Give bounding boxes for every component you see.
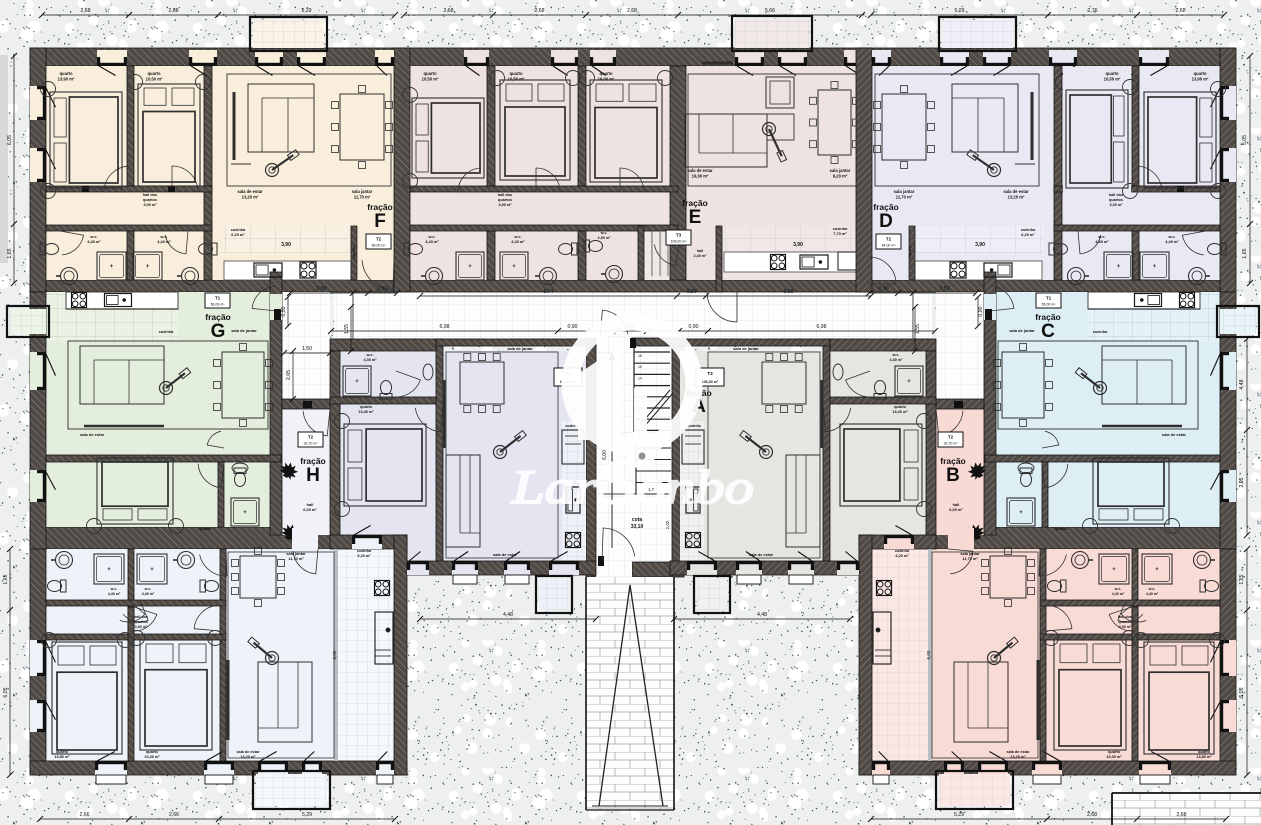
svg-text:+: + — [243, 510, 247, 516]
svg-text:T2: T2 — [308, 435, 314, 440]
svg-text:2,68: 2,68 — [443, 8, 453, 14]
svg-text:+: + — [512, 264, 516, 270]
svg-text:2,40 m²: 2,40 m² — [693, 254, 707, 258]
svg-text:2,95: 2,95 — [1239, 477, 1245, 487]
svg-text:quartos: quartos — [143, 198, 157, 202]
svg-text:2,66: 2,66 — [79, 812, 89, 818]
svg-text:T2: T2 — [948, 435, 954, 440]
svg-text:2,68: 2,68 — [1175, 8, 1185, 14]
svg-text:quartos: quartos — [134, 620, 148, 624]
svg-text:11,70 m²: 11,70 m² — [354, 194, 371, 199]
svg-text:2,68: 2,68 — [534, 8, 544, 14]
svg-text:4,40 m²: 4,40 m² — [511, 239, 525, 244]
svg-text:1,55: 1,55 — [915, 324, 921, 334]
svg-text:4,00 m²: 4,00 m² — [498, 203, 512, 207]
svg-text:5,29: 5,29 — [302, 812, 312, 818]
svg-text:13,40 m²: 13,40 m² — [892, 410, 908, 414]
svg-text:quarto: quarto — [59, 71, 72, 76]
svg-text:hall: hall — [697, 249, 704, 253]
svg-text:6,05: 6,05 — [3, 687, 9, 697]
svg-text:11,70 m²: 11,70 m² — [962, 556, 978, 561]
svg-text:6,00 m²: 6,00 m² — [949, 507, 963, 512]
svg-text:sala de estar: sala de estar — [1162, 432, 1187, 437]
svg-text:quarto: quarto — [1055, 526, 1068, 531]
svg-text:4,40 m²: 4,40 m² — [1146, 592, 1159, 596]
svg-text:1,55: 1,55 — [344, 324, 350, 334]
svg-text:3,00 m²: 3,00 m² — [1109, 203, 1123, 207]
svg-text:+: + — [107, 567, 111, 573]
svg-text:19,30 m²: 19,30 m² — [692, 173, 709, 178]
svg-text:11,70 m²: 11,70 m² — [896, 194, 913, 199]
svg-text:cozinha: cozinha — [895, 549, 910, 553]
svg-text:hall dos: hall dos — [498, 193, 512, 197]
svg-text:cota: cota — [632, 517, 643, 523]
svg-text:quarto: quarto — [360, 405, 372, 409]
svg-text:sala de estar: sala de estar — [1006, 750, 1030, 754]
svg-text:5,29: 5,29 — [301, 8, 311, 14]
svg-text:quarto: quarto — [423, 71, 436, 76]
svg-text:+: + — [468, 264, 472, 270]
svg-text:hall dos: hall dos — [1109, 193, 1123, 197]
svg-text:106,00 m²: 106,00 m² — [702, 380, 719, 384]
svg-text:16,00 m²: 16,00 m² — [598, 76, 615, 81]
svg-text:sala jantar: sala jantar — [830, 168, 851, 173]
svg-text:E: E — [689, 207, 702, 228]
svg-text:sala de estar: sala de estar — [1003, 189, 1029, 194]
svg-text:C: C — [1041, 321, 1055, 342]
svg-text:16: 16 — [638, 354, 642, 358]
svg-text:86,00 m²: 86,00 m² — [372, 244, 387, 248]
svg-text:sala jantar: sala jantar — [352, 189, 373, 194]
svg-text:0,90: 0,90 — [281, 306, 287, 316]
svg-text:3,90: 3,90 — [975, 242, 985, 248]
svg-text:F: F — [374, 211, 386, 232]
svg-text:92,70 m²: 92,70 m² — [944, 442, 959, 446]
svg-text:3,00 m²: 3,00 m² — [143, 203, 157, 207]
svg-text:6,98: 6,98 — [439, 324, 449, 330]
svg-text:13,90 m²: 13,90 m² — [1192, 76, 1209, 81]
svg-text:4,40 m²: 4,40 m² — [1165, 239, 1179, 244]
svg-text:4,40 m²: 4,40 m² — [1112, 592, 1125, 596]
svg-text:sala de estar: sala de estar — [80, 432, 105, 437]
svg-text:7,70 m²: 7,70 m² — [833, 231, 847, 236]
svg-text:quartos: quartos — [1118, 620, 1132, 624]
svg-text:quarto: quarto — [599, 71, 612, 76]
svg-text:1,65: 1,65 — [1239, 574, 1245, 584]
svg-text:10,50 m²: 10,50 m² — [508, 76, 525, 81]
svg-text:0,90: 0,90 — [686, 289, 696, 295]
svg-text:5,29: 5,29 — [954, 8, 964, 14]
svg-text:4,40 m²: 4,40 m² — [87, 239, 101, 244]
svg-text:3,00 m²: 3,00 m² — [1119, 625, 1132, 629]
svg-text:w.c.: w.c. — [600, 231, 608, 235]
svg-text:3,90: 3,90 — [793, 242, 803, 248]
svg-text:2,65: 2,65 — [286, 370, 292, 380]
svg-text:sala de estar: sala de estar — [749, 552, 774, 557]
svg-text:quarto: quarto — [894, 405, 906, 409]
svg-text:4,48: 4,48 — [757, 612, 767, 618]
svg-text:B: B — [946, 465, 960, 486]
svg-text:13,20 m²: 13,20 m² — [1008, 194, 1025, 199]
svg-text:6,20 m²: 6,20 m² — [357, 554, 371, 558]
svg-text:5,66: 5,66 — [765, 8, 775, 14]
svg-text:4,48: 4,48 — [503, 612, 513, 618]
svg-text:2,59: 2,59 — [939, 286, 949, 292]
svg-text:13,80 m²: 13,80 m² — [1196, 755, 1212, 759]
svg-text:4,40 m²: 4,40 m² — [108, 592, 121, 596]
svg-text:4,40 m²: 4,40 m² — [142, 592, 155, 596]
svg-text:D: D — [879, 211, 893, 232]
svg-text:0,90: 0,90 — [878, 286, 888, 292]
svg-text:quartos: quartos — [498, 198, 512, 202]
svg-text:13,20 m²: 13,20 m² — [242, 194, 259, 199]
svg-text:cozinha: cozinha — [357, 549, 372, 553]
svg-text:6,20 m²: 6,20 m² — [1021, 232, 1035, 237]
svg-text:sala de estar: sala de estar — [493, 552, 518, 557]
svg-text:2,50 m²: 2,50 m² — [598, 236, 611, 240]
svg-text:5,29: 5,29 — [954, 812, 964, 818]
svg-text:hall dos: hall dos — [1118, 615, 1132, 619]
svg-text:sala de estar: sala de estar — [236, 750, 260, 754]
svg-text:10,30 m²: 10,30 m² — [1106, 755, 1122, 759]
svg-text:92,70 m²: 92,70 m² — [304, 442, 319, 446]
svg-text:+: + — [150, 567, 154, 573]
svg-text:w.c.: w.c. — [110, 587, 118, 591]
svg-text:4,30 m²: 4,30 m² — [363, 358, 377, 362]
svg-text:6,00 m²: 6,00 m² — [303, 507, 317, 512]
svg-text:cozinha: cozinha — [159, 329, 174, 334]
svg-text:+: + — [1019, 510, 1023, 516]
svg-text:T1: T1 — [215, 296, 221, 301]
svg-text:T2: T2 — [376, 237, 382, 242]
svg-text:sala de estar: sala de estar — [687, 168, 713, 173]
svg-text:2,59: 2,59 — [316, 286, 326, 292]
svg-text:5,05: 5,05 — [1242, 135, 1248, 145]
svg-text:quarto: quarto — [199, 526, 212, 531]
svg-text:0,90: 0,90 — [688, 324, 698, 330]
svg-text:13,40 m²: 13,40 m² — [358, 410, 374, 414]
svg-text:13,90 m²: 13,90 m² — [58, 76, 75, 81]
svg-text:6,20 m²: 6,20 m² — [895, 554, 909, 558]
svg-text:+: + — [907, 379, 911, 385]
svg-text:2,02: 2,02 — [665, 520, 670, 529]
svg-text:+: + — [1155, 567, 1159, 573]
svg-text:13,80 m²: 13,80 m² — [54, 755, 70, 759]
svg-text:T1: T1 — [1046, 296, 1052, 301]
svg-text:9,20 m²: 9,20 m² — [833, 173, 848, 178]
svg-text:quarto: quarto — [146, 750, 158, 754]
svg-text:6,00: 6,00 — [926, 650, 931, 659]
svg-text:sala jantar: sala jantar — [894, 189, 915, 194]
svg-text:10,50 m²: 10,50 m² — [146, 76, 163, 81]
svg-text:w.c.: w.c. — [365, 353, 373, 357]
svg-text:4,48: 4,48 — [1239, 379, 1245, 389]
svg-text:84,00 m²: 84,00 m² — [882, 244, 897, 248]
svg-text:6,20 m²: 6,20 m² — [231, 232, 245, 237]
svg-text:14: 14 — [638, 376, 642, 380]
svg-text:8,74: 8,74 — [543, 289, 553, 295]
svg-text:quarto: quarto — [509, 71, 522, 76]
svg-text:2,68: 2,68 — [627, 8, 637, 14]
svg-text:esp. frio: esp. frio — [908, 246, 912, 258]
svg-text:T3: T3 — [676, 233, 682, 238]
svg-text:quarto: quarto — [1198, 750, 1210, 754]
svg-text:quarto: quarto — [1193, 71, 1206, 76]
svg-text:2,76: 2,76 — [1087, 8, 1097, 14]
svg-text:1,50: 1,50 — [302, 346, 312, 352]
svg-text:sala de jantar: sala de jantar — [231, 328, 257, 333]
svg-text:quartos: quartos — [1109, 198, 1123, 202]
svg-text:sala de jantar: sala de jantar — [1009, 328, 1035, 333]
svg-text:quarto: quarto — [1105, 71, 1118, 76]
svg-text:hall dos: hall dos — [134, 615, 148, 619]
svg-text:56,00 m²: 56,00 m² — [211, 303, 226, 307]
svg-text:G: G — [211, 321, 226, 342]
svg-text:H: H — [306, 465, 320, 486]
svg-text:6,05: 6,05 — [7, 135, 13, 145]
svg-text:2,68: 2,68 — [1087, 812, 1097, 818]
svg-text:15: 15 — [638, 365, 642, 369]
svg-text:33,10: 33,10 — [631, 524, 644, 530]
svg-text:6,98: 6,98 — [816, 324, 826, 330]
svg-text:w.c.: w.c. — [144, 587, 152, 591]
svg-text:+: + — [146, 264, 150, 270]
svg-text:2,68: 2,68 — [168, 8, 178, 14]
svg-text:56,00 m²: 56,00 m² — [1042, 303, 1057, 307]
svg-text:106,00 m²: 106,00 m² — [671, 240, 688, 244]
svg-text:5,08: 5,08 — [783, 289, 793, 295]
svg-text:2,66: 2,66 — [169, 812, 179, 818]
svg-text:quarto: quarto — [1108, 750, 1120, 754]
svg-text:13,20 m²: 13,20 m² — [1010, 755, 1026, 759]
svg-text:10,30 m²: 10,30 m² — [144, 755, 160, 759]
svg-text:T3: T3 — [707, 371, 713, 376]
svg-text:2,68: 2,68 — [1176, 812, 1186, 818]
svg-text:1,65: 1,65 — [1242, 248, 1248, 258]
svg-text:esp. frio: esp. frio — [352, 246, 356, 258]
svg-text:10,50 m²: 10,50 m² — [1104, 76, 1121, 81]
svg-text:sala de estar: sala de estar — [237, 189, 263, 194]
svg-text:w.c.: w.c. — [891, 353, 899, 357]
svg-text:1,65: 1,65 — [7, 248, 13, 258]
svg-text:0,90: 0,90 — [377, 286, 387, 292]
svg-text:quarto: quarto — [147, 71, 160, 76]
svg-text:+: + — [1152, 264, 1156, 270]
svg-text:11,70 m²: 11,70 m² — [288, 556, 304, 561]
svg-text:3,00 m²: 3,00 m² — [135, 625, 148, 629]
svg-text:w.c.: w.c. — [1148, 587, 1156, 591]
svg-text:10,50 m²: 10,50 m² — [422, 76, 439, 81]
svg-text:4,40 m²: 4,40 m² — [157, 239, 171, 244]
svg-text:sala de jantar: sala de jantar — [733, 346, 759, 351]
svg-text:quarto: quarto — [56, 750, 68, 754]
svg-text:6,00: 6,00 — [332, 650, 337, 659]
svg-text:w.c.: w.c. — [1114, 587, 1122, 591]
svg-text:3,90: 3,90 — [281, 242, 291, 248]
svg-text:+: + — [1112, 567, 1116, 573]
svg-text:5,05: 5,05 — [1239, 687, 1245, 697]
svg-text:2,68: 2,68 — [80, 8, 90, 14]
svg-text:0,90: 0,90 — [978, 306, 984, 316]
svg-text:cozinha: cozinha — [1093, 329, 1108, 334]
svg-text:+: + — [355, 379, 359, 385]
svg-text:4,40 m²: 4,40 m² — [1095, 239, 1109, 244]
svg-text:13,20 m²: 13,20 m² — [240, 755, 256, 759]
svg-text:4,40 m²: 4,40 m² — [425, 239, 439, 244]
svg-text:0,90: 0,90 — [567, 324, 577, 330]
svg-text:T2: T2 — [886, 237, 892, 242]
svg-text:1,65: 1,65 — [3, 574, 9, 584]
svg-text:+: + — [110, 264, 114, 270]
svg-text:+: + — [1116, 264, 1120, 270]
svg-text:4,30 m²: 4,30 m² — [889, 358, 903, 362]
svg-text:sala de jantar: sala de jantar — [507, 346, 533, 351]
svg-text:hall dos: hall dos — [143, 193, 157, 197]
